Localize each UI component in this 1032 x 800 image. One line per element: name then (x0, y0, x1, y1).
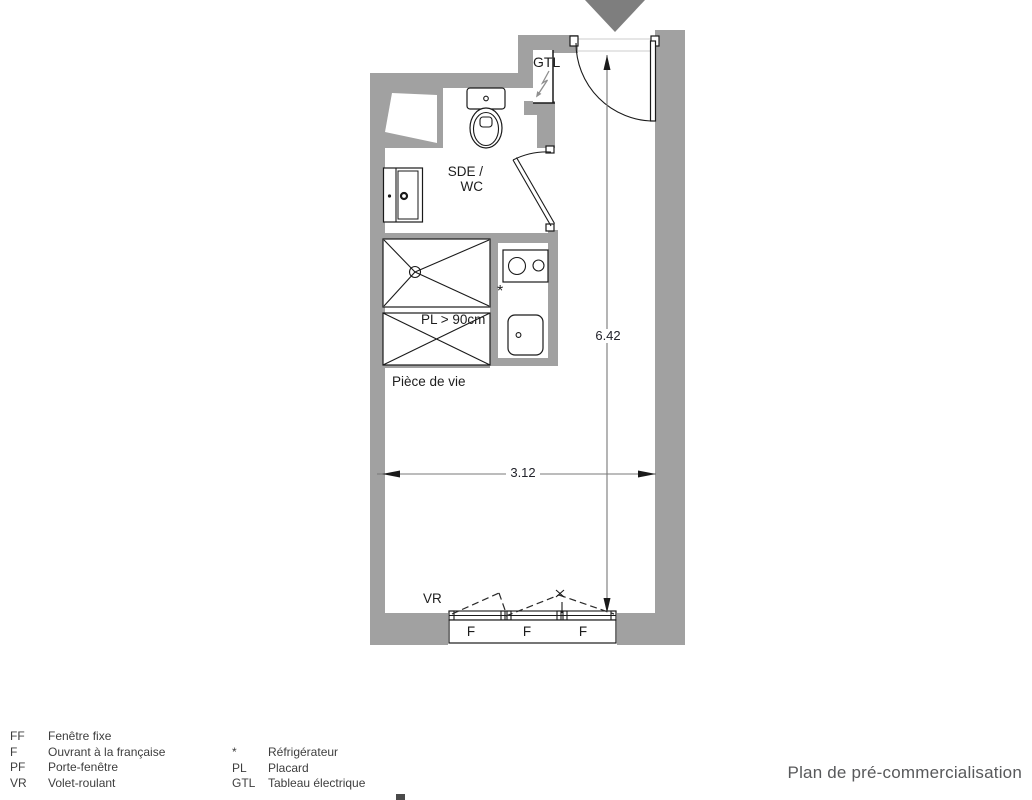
bathroom-door-swing (513, 152, 551, 160)
entrance-arrow-marker (585, 0, 645, 32)
wall-right (655, 30, 685, 645)
shower-tray (383, 239, 490, 307)
legend-item-f: FOuvrant à la française (10, 745, 165, 761)
dimension-width-value: 3.12 (506, 466, 540, 480)
toilet-bowl (470, 108, 502, 148)
bathroom-door (513, 146, 555, 231)
window-panel-label: F (513, 624, 541, 639)
legend-item-pl: PLPlacard (232, 761, 365, 777)
window-panel-label: F (569, 624, 597, 639)
floor-plan-page: GTL SDE / WC PL > 90cm Pièce de vie VR *… (0, 0, 1032, 800)
roller-shutter-label: VR (423, 591, 442, 606)
entrance-door-leaf (651, 41, 656, 121)
legend-item-pf: PFPorte-fenêtre (10, 760, 165, 776)
toilet (467, 88, 505, 148)
bathroom-door-leaf (513, 160, 551, 226)
room-label-bathroom: SDE / WC (425, 164, 483, 194)
wall-gtl-jamb (518, 35, 533, 88)
wall-bathroom-east-upper (537, 115, 555, 148)
legend-right-column: *Réfrigérateur PLPlacard GTLTableau élec… (232, 745, 365, 792)
room-label-living: Pièce de vie (392, 374, 466, 389)
legend-item-gtl: GTLTableau électrique (232, 776, 365, 792)
window-panel-label: F (457, 624, 485, 639)
kitchen (503, 250, 548, 355)
legend-item-fridge: *Réfrigérateur (232, 745, 365, 761)
kitchen-sink (508, 315, 543, 355)
entrance-door (570, 36, 659, 121)
entrance-door-swing (576, 43, 654, 121)
legend-item-ff: FFFenêtre fixe (10, 729, 165, 745)
wall-corridor-stub (548, 230, 558, 365)
gtl-label: GTL (533, 55, 560, 70)
legend-item-vr: VRVolet-roulant (10, 776, 165, 792)
cabinet-knob-left (388, 194, 391, 197)
fridge-marker: * (497, 284, 503, 299)
wall-kitchen-south (490, 358, 558, 366)
floor-plan-drawing (0, 0, 1032, 800)
wall-kitchen-west (490, 235, 498, 366)
toilet-tank (467, 88, 505, 109)
dimension-height-value: 6.42 (592, 329, 624, 343)
closet-label: PL > 90cm (421, 312, 485, 327)
wall-top-left (370, 73, 518, 88)
legend-left-column: FFFenêtre fixe FOuvrant à la française P… (10, 729, 165, 792)
page-title: Plan de pré-commercialisation (788, 763, 1022, 783)
cropped-logo-fragment (396, 794, 405, 800)
door-jamb-left (570, 36, 578, 46)
washbasin-cabinet (384, 168, 423, 222)
